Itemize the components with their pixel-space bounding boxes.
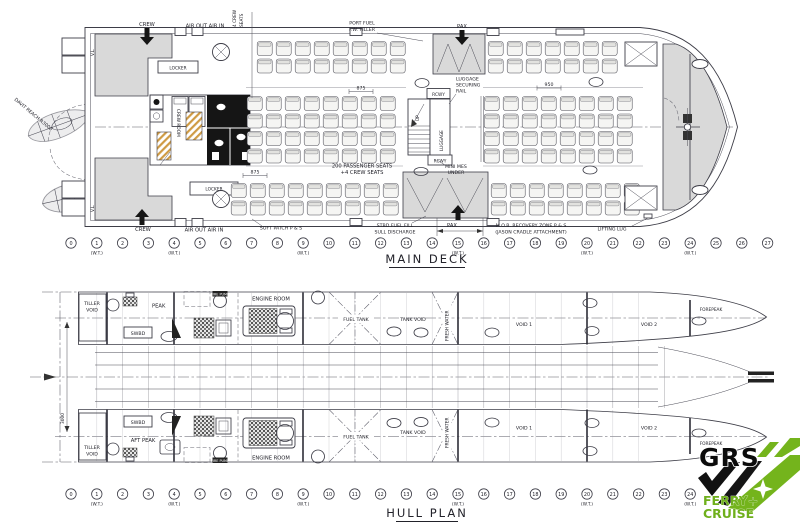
seat-back	[565, 60, 578, 64]
soft-patch-label: SOFT PATCH P & S	[260, 226, 302, 232]
seat-back	[580, 115, 593, 119]
seat-back	[580, 98, 593, 102]
seat-back	[327, 185, 340, 189]
frame-number: 19	[558, 492, 564, 498]
aft-peak-label: AFT PEAK	[131, 438, 156, 444]
seat-back	[270, 185, 283, 189]
frame-number: 1	[95, 492, 98, 498]
seat-back	[362, 115, 375, 119]
fresh-water-label: FRESH WATER	[445, 311, 451, 341]
seat-back	[618, 133, 631, 137]
frame-number: 22	[635, 492, 641, 498]
air-out-in-bottom-label: AIR OUT AIR IN	[185, 228, 224, 234]
frame-number: 23	[661, 492, 667, 498]
seat-back	[343, 133, 356, 137]
engine-room-label: ENGINE ROOM	[252, 297, 290, 303]
seat-back	[286, 98, 299, 102]
seat-back	[251, 202, 264, 206]
frame-number: 12	[377, 241, 383, 247]
swbd-label: SWBD	[131, 331, 146, 337]
frame-wt-label: (W.T.)	[91, 502, 103, 508]
hull-plan: 3000 TILLER VOID PEAK FIRE PUMP SWBD ENG…	[30, 291, 774, 522]
seat-back	[334, 60, 347, 64]
pax-top-label: PAX	[457, 24, 467, 30]
seat-back	[492, 202, 505, 206]
seat-back	[248, 133, 261, 137]
frame-number: 13	[403, 241, 409, 247]
seat-back	[372, 43, 385, 47]
seat-back	[618, 150, 631, 154]
frame-number: 20	[584, 492, 590, 498]
frame-wt-label: (W.T.)	[684, 251, 696, 257]
seat-back	[508, 60, 521, 64]
frame-number: 21	[610, 241, 616, 247]
ga-drawing-sheet: DAVIT REACH R3000 V.L. V.L.	[0, 0, 800, 530]
seat-back	[258, 60, 271, 64]
stbd-fuel-label-1: STBD FUEL FILL	[377, 223, 414, 229]
frame-number: 17	[506, 241, 512, 247]
frame-number: 16	[481, 492, 487, 498]
seat-back	[384, 202, 397, 206]
seat-back	[568, 185, 581, 189]
grs-ferry-cruise-logo: GRS FERRY+ CRUISE	[698, 438, 800, 521]
seat-back	[381, 115, 394, 119]
seat-back	[568, 202, 581, 206]
seat-back	[296, 60, 309, 64]
crew-room-label: CREW ROOM	[175, 109, 181, 137]
frame-number: 26	[739, 241, 745, 247]
seat-back	[542, 98, 555, 102]
frame-number: 3	[147, 241, 150, 247]
seat-back	[277, 43, 290, 47]
seat-back	[530, 185, 543, 189]
seat-back	[504, 98, 517, 102]
frame-number: 8	[276, 492, 279, 498]
fuel-tank-label: FUEL TANK	[343, 434, 369, 440]
rcwy-top-label: RCWY	[432, 92, 445, 98]
seat-back	[346, 202, 359, 206]
logo-green-sliver-icon	[774, 438, 800, 457]
seat-back	[584, 60, 597, 64]
seat-back	[489, 60, 502, 64]
crew-bottom-label: CREW	[135, 227, 151, 233]
seat-back	[511, 185, 524, 189]
tiller-void-label: VOID	[86, 308, 98, 314]
seat-back	[248, 98, 261, 102]
frame-wt-label: (W.T.)	[297, 502, 309, 508]
seat-back	[603, 60, 616, 64]
seat-back	[362, 98, 375, 102]
frame-number: 7	[250, 241, 253, 247]
seat-back	[324, 98, 337, 102]
crew-room-wc-block: CREW ROOM	[150, 95, 250, 165]
frame-number: 5	[198, 241, 201, 247]
seat-back	[485, 133, 498, 137]
stairs-up-label: UP	[415, 115, 421, 121]
seat-back	[504, 115, 517, 119]
seat-back	[362, 150, 375, 154]
frame-number: 2	[121, 241, 124, 247]
seat-back	[270, 202, 283, 206]
fire-pump-label: FIRE PUMP	[211, 459, 229, 463]
seat-back	[546, 43, 559, 47]
frame-number: 9	[302, 492, 305, 498]
pax-vestibule-bottom	[403, 172, 488, 218]
seat-back	[315, 60, 328, 64]
seat-back	[251, 185, 264, 189]
frame-number: 24	[687, 241, 693, 247]
seat-back	[296, 43, 309, 47]
frame-number: 8	[276, 241, 279, 247]
seat-back	[523, 133, 536, 137]
seat-back	[565, 43, 578, 47]
frame-number: 11	[352, 241, 358, 247]
seat-back	[248, 150, 261, 154]
seat-back	[286, 150, 299, 154]
frame-wt-label: (W.T.)	[168, 251, 180, 257]
void2-label: VOID 2	[641, 426, 657, 432]
frame-number: 14	[429, 241, 435, 247]
frame-wt-label: (W.T.)	[168, 502, 180, 508]
engine-room-label: ENGINE ROOM	[252, 456, 290, 462]
seat-back	[365, 185, 378, 189]
frame-number: 9	[302, 241, 305, 247]
lifting-lug-label: LIFTING LUG	[598, 227, 627, 233]
seat-back	[381, 133, 394, 137]
frame-number: 24	[687, 492, 693, 498]
seat-back	[523, 150, 536, 154]
void1-label: VOID 1	[516, 322, 532, 328]
seat-back	[584, 43, 597, 47]
seat-back	[599, 115, 612, 119]
frame-number: 21	[610, 492, 616, 498]
seat-back	[232, 185, 245, 189]
tiller-void-label: TILLER	[83, 445, 100, 451]
seat-back	[530, 202, 543, 206]
frame-number: 4	[173, 241, 176, 247]
logo-green-sliver-icon	[757, 442, 779, 457]
seat-back	[603, 43, 616, 47]
seat-back	[308, 202, 321, 206]
seat-back	[353, 43, 366, 47]
seat-back	[324, 133, 337, 137]
frame-number: 11	[352, 492, 358, 498]
seat-back	[324, 115, 337, 119]
seat-back	[527, 60, 540, 64]
frame-number: 22	[635, 241, 641, 247]
tank-void-label: TANK VOID	[399, 430, 426, 436]
frame-number: 13	[403, 492, 409, 498]
seat-back	[492, 185, 505, 189]
crew-seats-note-2: SEATS	[239, 13, 245, 27]
frame-number: 0	[69, 241, 72, 247]
seat-back	[606, 185, 619, 189]
seat-back	[305, 150, 318, 154]
seat-back	[353, 60, 366, 64]
seat-back	[549, 185, 562, 189]
seat-back	[232, 202, 245, 206]
frame-number: 10	[326, 492, 332, 498]
hull-plan-title: HULL PLAN	[386, 506, 468, 520]
frame-number: 6	[224, 241, 227, 247]
frame-number: 5	[198, 492, 201, 498]
frame-number: 0	[69, 492, 72, 498]
centerline-bracket	[748, 372, 774, 376]
passenger-seats-note-2: +4 CREW SEATS	[341, 170, 384, 176]
seat-back	[384, 185, 397, 189]
seat-back	[542, 115, 555, 119]
frame-number: 10	[326, 241, 332, 247]
seat-back	[587, 202, 600, 206]
seat-back	[346, 185, 359, 189]
seat-back	[343, 115, 356, 119]
luggage-label: LUGGAGE	[439, 130, 445, 151]
frame-number: 14	[429, 492, 435, 498]
seat-back	[561, 133, 574, 137]
seat-back	[504, 150, 517, 154]
frame-number: 2	[121, 492, 124, 498]
seat-back	[267, 115, 280, 119]
luggage-rail-label-3: RAIL	[456, 89, 467, 95]
seat-back	[599, 150, 612, 154]
seat-back	[305, 98, 318, 102]
seat-back	[362, 133, 375, 137]
frame-number: 17	[506, 492, 512, 498]
forepeak-label: FOREPEAK	[700, 307, 723, 313]
void1-label: VOID 1	[516, 426, 532, 432]
seat-back	[391, 43, 404, 47]
seat-back	[485, 115, 498, 119]
seat-back	[267, 150, 280, 154]
frame-number: 18	[532, 492, 538, 498]
seat-back	[258, 43, 271, 47]
swbd-label: SWBD	[131, 420, 146, 426]
passenger-seats-note-1: 200 PASSENGER SEATS	[332, 164, 392, 170]
locker-top-label: LOCKER	[169, 66, 186, 72]
seat-back	[289, 185, 302, 189]
seat-back	[334, 43, 347, 47]
seat-back	[365, 202, 378, 206]
rcwy-bottom-label: RCWY	[434, 158, 447, 164]
frame-wt-label: (W.T.)	[581, 502, 593, 508]
seat-back	[587, 185, 600, 189]
fire-pump-label: FIRE PUMP	[211, 292, 229, 296]
seat-back	[381, 150, 394, 154]
frame-number: 15	[455, 492, 461, 498]
seat-back	[527, 43, 540, 47]
centerline-bracket	[748, 379, 774, 383]
seat-back	[327, 202, 340, 206]
mini-mes-label-2: UNDER	[448, 170, 466, 176]
port-fuel-label-2: F.W. FILLER	[349, 27, 376, 33]
port-fuel-label-1: PORT FUEL	[349, 21, 375, 27]
frame-number: 18	[532, 241, 538, 247]
frame-wt-label: (W.T.)	[91, 251, 103, 257]
seat-back	[485, 150, 498, 154]
crew-top-label: CREW	[139, 22, 155, 28]
seat-back	[542, 133, 555, 137]
seat-back	[489, 43, 502, 47]
seat-back	[343, 150, 356, 154]
seat-back	[381, 98, 394, 102]
frame-wt-label: (W.T.)	[297, 251, 309, 257]
crew-seats-note-1: 4 CREW	[232, 9, 238, 27]
seat-back	[504, 133, 517, 137]
frame-number: 19	[558, 241, 564, 247]
frame-number: 12	[377, 492, 383, 498]
seat-back	[372, 60, 385, 64]
seat-back	[511, 202, 524, 206]
seat-back	[549, 202, 562, 206]
frame-number: 4	[173, 492, 176, 498]
seat-back	[277, 60, 290, 64]
seat-back	[523, 115, 536, 119]
seat-back	[561, 150, 574, 154]
frame-number: 3	[147, 492, 150, 498]
luggage-rail-label-1: LUGGAGE	[456, 77, 479, 83]
hull-plan-frame-scale: 01(W.T.)234(W.T.)56789(W.T.)101112131415…	[66, 489, 697, 508]
seat-back	[508, 43, 521, 47]
frame-number: 27	[764, 241, 770, 247]
tiller-void-label: TILLER	[83, 301, 100, 307]
frame-number: 7	[250, 492, 253, 498]
void2-label: VOID 2	[641, 322, 657, 328]
tiller-void-label: VOID	[86, 452, 98, 458]
frame-number: 20	[584, 241, 590, 247]
dim-875-mid: 875	[357, 86, 366, 92]
seat-back	[343, 98, 356, 102]
peak-label: PEAK	[152, 304, 166, 310]
seat-back	[606, 202, 619, 206]
seat-back	[267, 133, 280, 137]
seat-back	[485, 98, 498, 102]
seat-back	[618, 98, 631, 102]
frame-number: 6	[224, 492, 227, 498]
seat-back	[324, 150, 337, 154]
seat-back	[561, 115, 574, 119]
fuel-tank-label: FUEL TANK	[343, 317, 369, 323]
seat-back	[315, 43, 328, 47]
tank-void-label: TANK VOID	[399, 317, 426, 323]
frame-number: 23	[661, 241, 667, 247]
dim-950: 950	[545, 82, 554, 88]
seat-back	[305, 133, 318, 137]
seat-back	[599, 98, 612, 102]
seat-back	[599, 133, 612, 137]
seat-back	[286, 115, 299, 119]
dim-875-aft: 875	[251, 170, 260, 176]
air-out-in-top-label: AIR OUT AIR IN	[186, 24, 225, 30]
seat-back	[546, 60, 559, 64]
logo-tagline-2: CRUISE	[703, 506, 754, 521]
dim-3000-label: 3000	[60, 413, 66, 424]
seat-back	[391, 60, 404, 64]
frame-wt-label: (W.T.)	[684, 502, 696, 508]
seat-back	[267, 98, 280, 102]
mini-mes-label-1: MINI MES	[445, 164, 467, 170]
stbd-fuel-label-2: SULL DISCHARGE	[375, 230, 416, 236]
seat-back	[561, 98, 574, 102]
seat-back	[305, 115, 318, 119]
fresh-water-label: FRESH WATER	[445, 418, 451, 448]
seat-back	[286, 133, 299, 137]
frame-number: 15	[455, 241, 461, 247]
seat-back	[289, 202, 302, 206]
main-deck-title: MAIN DECK	[385, 252, 468, 266]
seat-back	[523, 98, 536, 102]
frame-number: 25	[713, 241, 719, 247]
mob-zone-label-1: M.O.B. RECOVERY ZONE P & S	[496, 223, 567, 229]
seat-back	[580, 150, 593, 154]
luggage-rail-label-2: SECURING	[456, 83, 481, 89]
seat-back	[580, 133, 593, 137]
main-deck-plan: DAVIT REACH R3000 V.L. V.L.	[13, 9, 773, 267]
mob-zone-label-2: (JASON CRADLE ATTACHMENT)	[495, 230, 567, 236]
seat-back	[618, 115, 631, 119]
frame-number: 16	[481, 241, 487, 247]
frame-number: 1	[95, 241, 98, 247]
seat-back	[308, 185, 321, 189]
frame-wt-label: (W.T.)	[581, 251, 593, 257]
seat-back	[542, 150, 555, 154]
logo-brand-text: GRS	[699, 443, 760, 472]
seat-back	[248, 115, 261, 119]
pax-bottom-label: PAX	[447, 223, 457, 229]
